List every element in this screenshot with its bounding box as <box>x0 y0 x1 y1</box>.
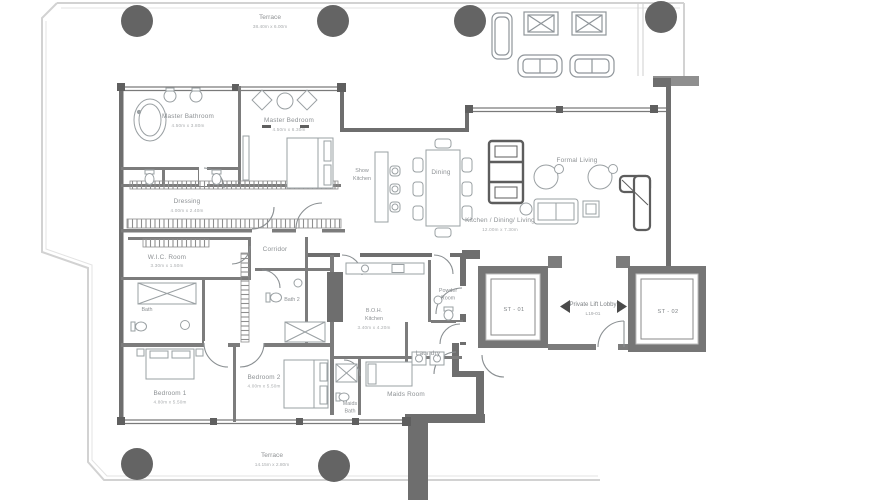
shower-icon <box>336 364 357 382</box>
column-icon <box>317 5 349 37</box>
wardrobe-hatching <box>127 181 341 342</box>
toilet-icon <box>336 393 349 401</box>
terrace-top-label: Terrace <box>259 14 281 21</box>
show-kitchen-label-2: Kitchen <box>353 176 371 182</box>
square-table-icon <box>583 201 599 217</box>
sofa-icon <box>534 199 578 224</box>
boh-kitchen-label-1: B.O.H. <box>366 308 382 314</box>
bedroom-1-dims: 4.80m x 5.50m <box>154 400 187 405</box>
bath-2-label: Bath 2 <box>284 297 300 303</box>
master-bathroom-dims: 4.50m x 3.80m <box>172 123 205 128</box>
sink-icon <box>190 90 202 102</box>
tall-cabinet-icon <box>327 272 343 322</box>
furniture <box>131 88 650 408</box>
sink-icon <box>294 279 302 287</box>
stool-icon <box>390 202 400 212</box>
terrace-divider-line <box>638 3 643 76</box>
nightstand-icon <box>137 349 144 356</box>
toilet-icon <box>145 170 154 185</box>
toilet-icon <box>131 322 147 331</box>
stool-icon <box>390 166 400 176</box>
tall-kitchen-unit-icon <box>489 141 523 203</box>
column-icon <box>121 448 153 480</box>
toilet-icon <box>444 307 453 320</box>
armchair-icon <box>252 90 272 110</box>
bed-icon <box>284 360 328 408</box>
laundry-label: Laundry <box>416 350 441 357</box>
column-icon <box>645 1 677 33</box>
maids-bath-label-2: Bath <box>344 409 355 415</box>
bath-1-label: Bath <box>141 307 152 313</box>
bedroom-1-label: Bedroom 1 <box>153 390 186 397</box>
sink-icon <box>164 90 176 102</box>
bed-icon <box>366 362 412 386</box>
corridor-label: Corridor <box>263 246 288 253</box>
private-lift-lobby-code: L19-01 <box>586 311 601 317</box>
show-kitchen-label-1: Show <box>355 168 369 174</box>
outdoor-sofa-icon <box>570 55 614 77</box>
l-sofa-icon <box>620 176 650 230</box>
maids-room-label: Maids Room <box>387 391 425 398</box>
lift-arrow-right-icon <box>617 300 627 313</box>
nightstand-icon <box>196 349 203 356</box>
wic-room-label: W.I.C. Room <box>148 254 186 261</box>
terrace-bottom-label: Terrace <box>261 452 283 459</box>
terrace-top-dims: 38.40m x 6.00m <box>253 24 287 30</box>
bedroom-2-label: Bedroom 2 <box>247 374 280 381</box>
kitchen-dining-living-dims: 12.00m x 7.30m <box>482 227 518 232</box>
master-bedroom-label: Master Bedroom <box>264 117 314 124</box>
master-bedroom-dims: 4.50m x 6.30m <box>273 127 306 132</box>
floor-plan-drawing: Terrace 38.40m x 6.00m Terrace 14.15m x … <box>0 0 890 500</box>
dining-table-icon <box>426 150 460 226</box>
terrace-furniture <box>492 12 614 77</box>
column-icon <box>454 5 486 37</box>
wic-room-dims: 3.30m x 1.50m <box>151 263 184 268</box>
toilet-icon <box>266 293 282 302</box>
boh-kitchen-dims: 3.40m x 4.20m <box>358 325 391 330</box>
powder-room-label-1: Powder <box>439 288 457 294</box>
terrace-bottom-dims: 14.15m x 2.80m <box>255 462 289 468</box>
bed-icon <box>287 138 333 188</box>
console-icon <box>243 136 249 180</box>
boh-kitchen-label-2: Kitchen <box>365 316 383 322</box>
sink-icon <box>362 265 369 272</box>
st-02-label: ST - 02 <box>657 309 678 315</box>
formal-living-label: Formal Living <box>557 157 598 164</box>
kitchen-counter-icon <box>346 263 424 274</box>
terrace-boundary-outline <box>42 3 684 480</box>
dining-label: Dining <box>431 169 451 176</box>
outdoor-sofa-icon <box>518 55 562 77</box>
dressing-dims: 4.00m x 2.40m <box>171 208 204 213</box>
kitchen-dining-living-label: Kitchen / Dining/ Living <box>465 217 535 224</box>
maids-bath-label-1: Maids <box>343 401 358 407</box>
side-table-icon <box>277 93 293 109</box>
shower-icon <box>138 283 196 304</box>
exterior-walls <box>119 78 671 500</box>
terrace-boundary-inner-line <box>46 8 680 476</box>
coffee-table-icon <box>524 12 558 35</box>
cooktop-icon <box>392 265 404 273</box>
coffee-table-icon <box>572 12 606 35</box>
side-table-icon <box>520 203 532 215</box>
private-lift-lobby-label: Private Lift Lobby <box>569 301 617 308</box>
master-bathroom-label: Master Bathroom <box>162 113 214 120</box>
stool-icon <box>390 184 400 194</box>
st-01-label: ST - 01 <box>503 307 524 313</box>
bed-icon <box>146 349 194 379</box>
floor-plan: Terrace 38.40m x 6.00m Terrace 14.15m x … <box>0 0 890 500</box>
sink-icon <box>181 321 190 330</box>
dressing-label: Dressing <box>174 198 201 205</box>
armchair-icon <box>297 90 317 110</box>
bedroom-2-dims: 4.00m x 5.50m <box>248 384 281 389</box>
powder-room-label-2: Room <box>441 296 456 302</box>
shower-icon <box>285 322 325 342</box>
toilet-icon <box>212 170 221 185</box>
column-icon <box>318 450 350 482</box>
column-icon <box>121 5 153 37</box>
kitchen-island-icon <box>375 152 388 222</box>
